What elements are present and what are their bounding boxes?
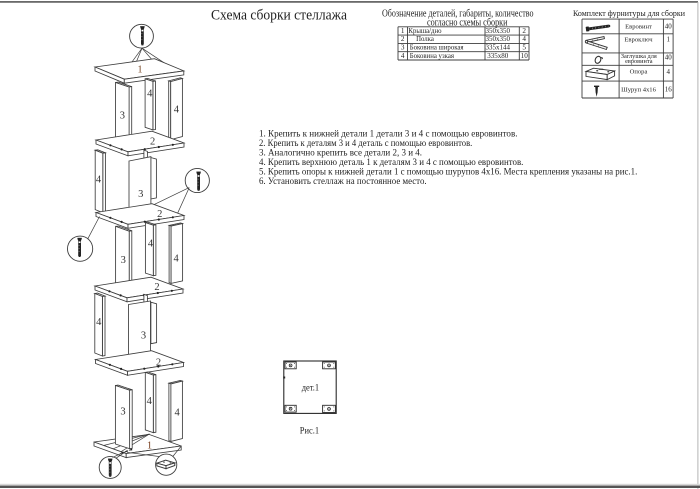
svg-text:1: 1 [137, 65, 142, 76]
svg-text:Полка: Полка [416, 36, 434, 43]
svg-text:1: 1 [147, 440, 152, 451]
svg-text:3: 3 [138, 189, 143, 200]
svg-text:4: 4 [174, 105, 180, 116]
svg-text:4: 4 [173, 253, 179, 264]
svg-text:Боковина широкая: Боковина широкая [410, 45, 464, 52]
svg-text:40: 40 [665, 23, 673, 31]
svg-text:4: 4 [147, 396, 153, 407]
svg-text:2: 2 [401, 35, 405, 43]
svg-text:Шуруп 4х16: Шуруп 4х16 [621, 86, 657, 93]
svg-text:3: 3 [401, 44, 405, 52]
svg-text:2: 2 [150, 136, 155, 147]
svg-text:Схема сборки стеллажа: Схема сборки стеллажа [211, 7, 348, 23]
svg-text:40: 40 [665, 54, 673, 62]
svg-text:Крыша/дно: Крыша/дно [408, 28, 442, 35]
svg-text:1: 1 [401, 27, 405, 35]
svg-text:4: 4 [148, 239, 154, 250]
svg-text:евровинта: евровинта [625, 58, 653, 65]
svg-text:2: 2 [157, 209, 162, 220]
svg-text:3: 3 [141, 331, 146, 342]
svg-text:1: 1 [666, 35, 670, 43]
svg-text:350х350: 350х350 [486, 27, 511, 35]
svg-text:Боковина узкая: Боковина узкая [410, 53, 454, 60]
svg-text:Евроключ: Евроключ [624, 36, 653, 43]
svg-text:3: 3 [121, 255, 126, 266]
svg-text:4: 4 [96, 175, 102, 186]
svg-text:4: 4 [666, 68, 670, 76]
svg-text:2: 2 [156, 357, 161, 368]
svg-text:16: 16 [665, 86, 673, 94]
svg-text:2: 2 [522, 27, 526, 35]
svg-text:5: 5 [522, 44, 526, 52]
svg-text:6. Установить стеллаж на посто: 6. Установить стеллаж на постоянное мест… [259, 177, 427, 187]
svg-text:Евровинт: Евровинт [625, 23, 652, 30]
svg-text:дет.1: дет.1 [302, 382, 320, 393]
svg-text:4: 4 [401, 52, 405, 60]
svg-text:2. Крепить к деталям 3 и 4 дет: 2. Крепить к деталям 3 и 4 деталь с помо… [259, 139, 472, 149]
svg-text:3: 3 [120, 110, 125, 121]
svg-text:4: 4 [96, 317, 102, 328]
svg-text:Опора: Опора [630, 69, 648, 76]
svg-text:335х80: 335х80 [487, 52, 509, 60]
svg-text:10: 10 [521, 52, 529, 60]
svg-text:3. Аналогично крепить все дета: 3. Аналогично крепить все детали 2, 3 и … [259, 149, 422, 159]
svg-text:5. Крепить опоры к нижней дета: 5. Крепить опоры к нижней детали 1 с пом… [259, 167, 637, 178]
svg-text:4: 4 [147, 89, 153, 100]
svg-text:3: 3 [120, 407, 125, 418]
svg-text:4. Крепить верхнюю деталь 1 к: 4. Крепить верхнюю деталь 1 к деталям 3 … [259, 158, 523, 168]
svg-text:335х144: 335х144 [486, 44, 511, 52]
svg-text:4: 4 [522, 35, 526, 43]
svg-text:350х350: 350х350 [486, 35, 511, 43]
svg-text:Комплект фурнитуры для сборки: Комплект фурнитуры для сборки [573, 8, 685, 18]
svg-text:2: 2 [154, 282, 159, 293]
svg-text:4: 4 [174, 407, 180, 418]
svg-text:Рис.1: Рис.1 [300, 426, 319, 437]
svg-text:1. Крепить к нижней детали 1 д: 1. Крепить к нижней детали 1 детали 3 и … [259, 129, 518, 140]
